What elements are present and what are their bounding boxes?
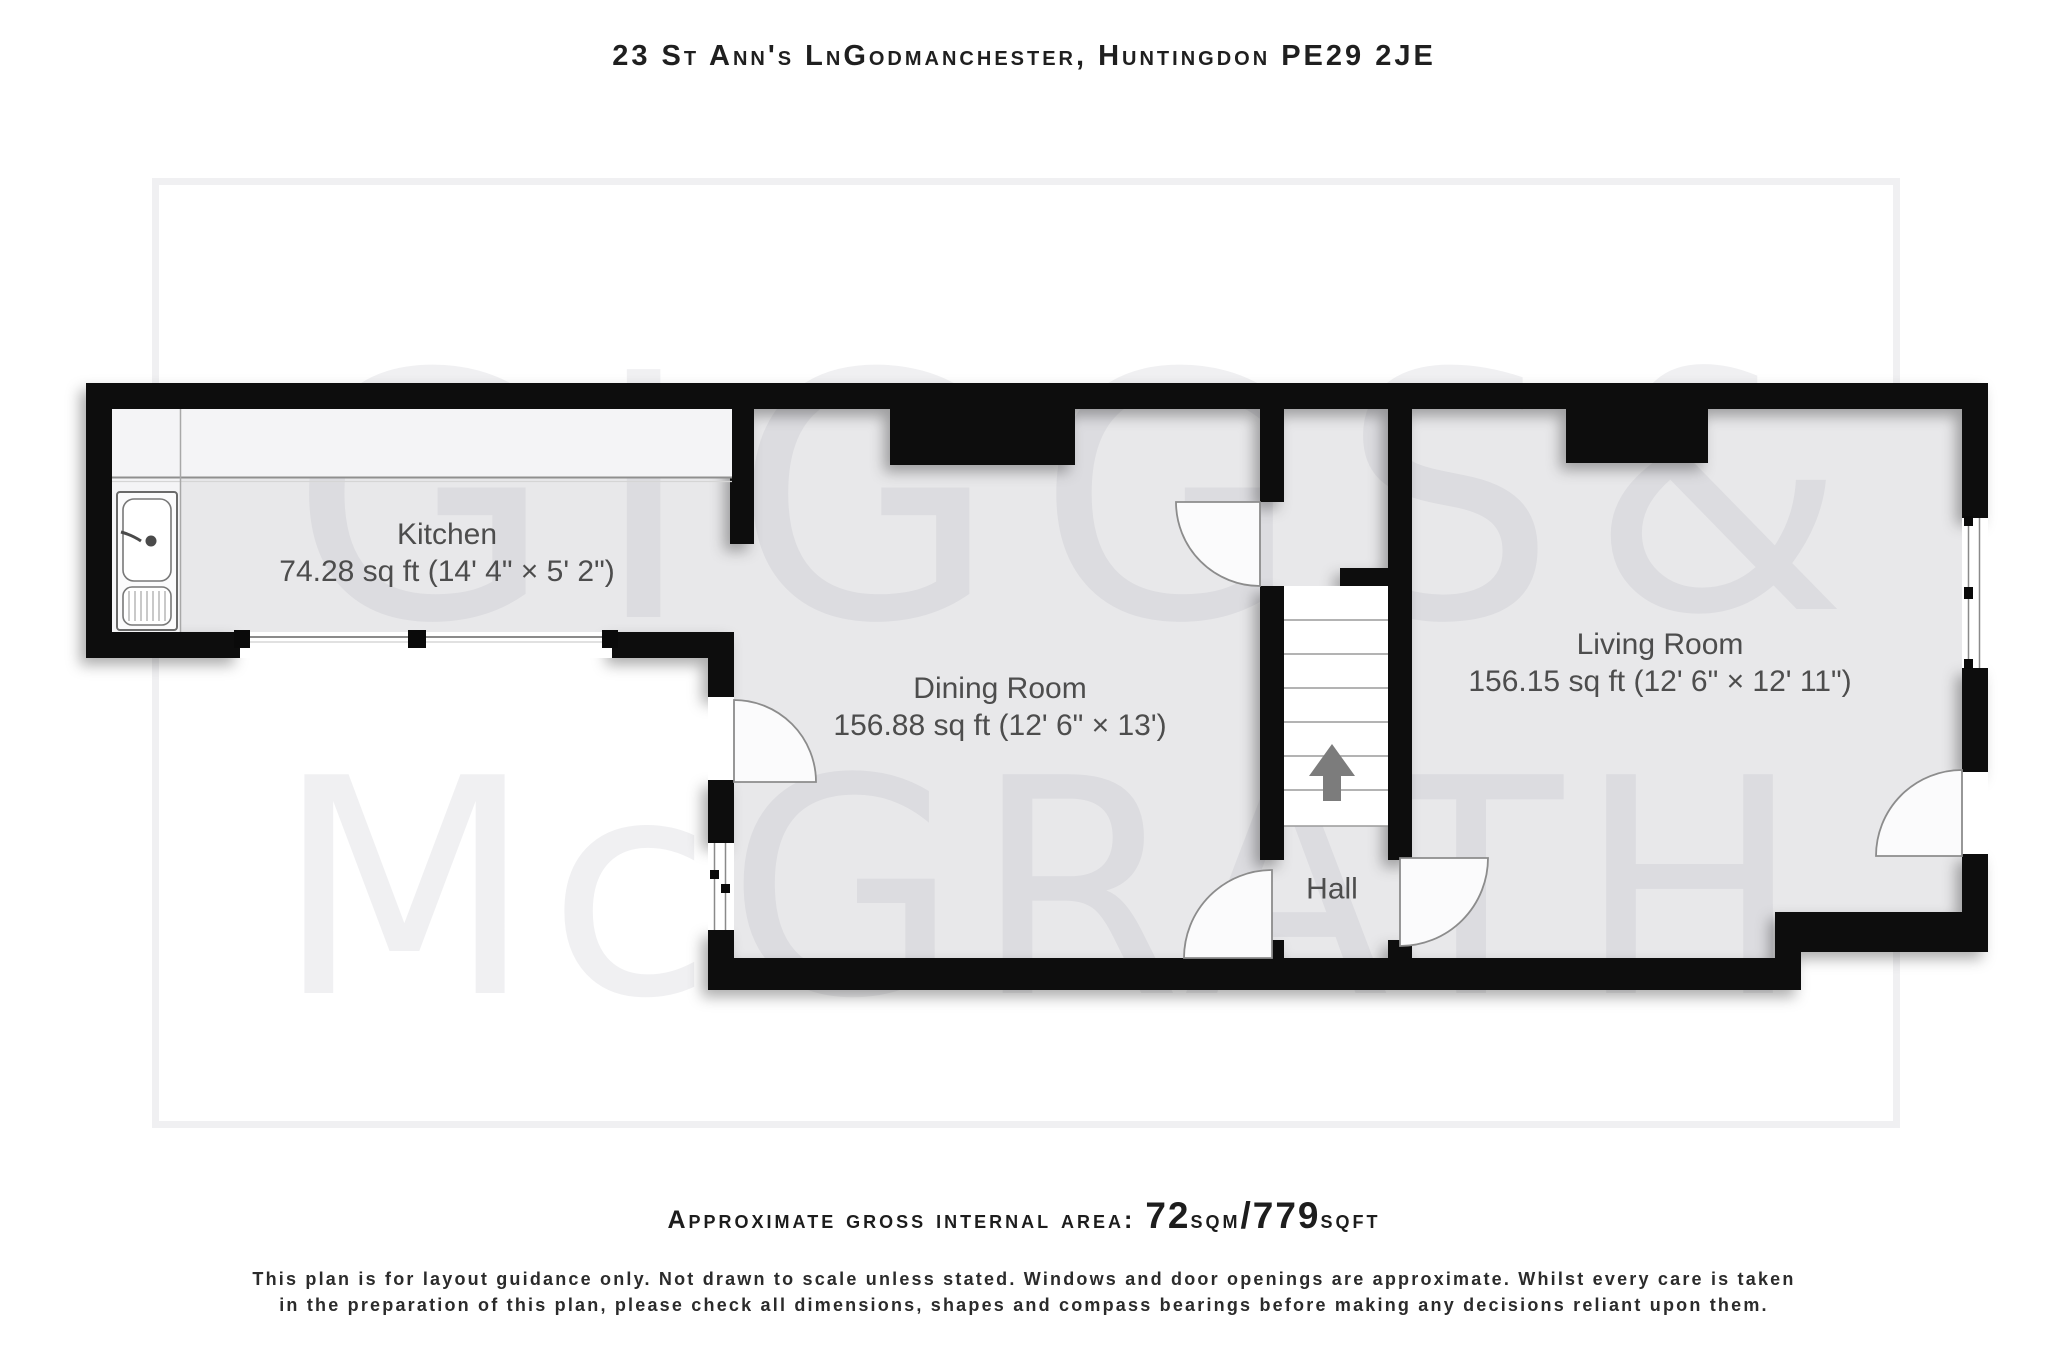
- room-name: Living Room: [1468, 626, 1851, 663]
- area-sqm-value: 72: [1145, 1195, 1190, 1236]
- door-kitchen-side-exit: [734, 700, 816, 782]
- room-name: Dining Room: [833, 670, 1166, 707]
- room-label-kitchen: Kitchen 74.28 sq ft (14' 4" × 5' 2"): [279, 516, 614, 590]
- disclaimer-line-2: in the preparation of this plan, please …: [0, 1292, 2048, 1318]
- area-sqm-unit: sqm: [1190, 1206, 1240, 1234]
- room-dims: 74.28 sq ft (14' 4" × 5' 2"): [279, 553, 614, 590]
- door-living-exit: [1876, 770, 1962, 856]
- staircase: [1284, 586, 1388, 826]
- disclaimer: This plan is for layout guidance only. N…: [0, 1266, 2048, 1318]
- room-name: Kitchen: [279, 516, 614, 553]
- area-sqft-unit: sqft: [1321, 1206, 1381, 1234]
- room-name: Hall: [1306, 871, 1358, 908]
- area-label: Approximate gross internal area:: [667, 1206, 1135, 1234]
- area-slash: /: [1241, 1195, 1253, 1236]
- page-title: 23 St Ann's LnGodmanchester, Huntingdon …: [0, 40, 2048, 73]
- floorplan-page: GIGGS & McGRATH: [0, 0, 2048, 1365]
- room-dims: 156.15 sq ft (12' 6" × 12' 11"): [1468, 663, 1851, 700]
- area-sqft-value: 779: [1253, 1195, 1321, 1236]
- room-dims: 156.88 sq ft (12' 6" × 13'): [833, 707, 1166, 744]
- door-dining-hall: [1184, 870, 1272, 958]
- door-dining-landing: [1176, 502, 1260, 586]
- sink-icon: [117, 492, 177, 630]
- room-label-living: Living Room 156.15 sq ft (12' 6" × 12' 1…: [1468, 626, 1851, 700]
- room-label-dining: Dining Room 156.88 sq ft (12' 6" × 13'): [833, 670, 1166, 744]
- disclaimer-line-1: This plan is for layout guidance only. N…: [0, 1266, 2048, 1292]
- door-hall-living: [1400, 858, 1488, 946]
- area-summary: Approximate gross internal area: 72sqm/7…: [0, 1192, 2048, 1244]
- room-label-hall: Hall: [1306, 871, 1358, 908]
